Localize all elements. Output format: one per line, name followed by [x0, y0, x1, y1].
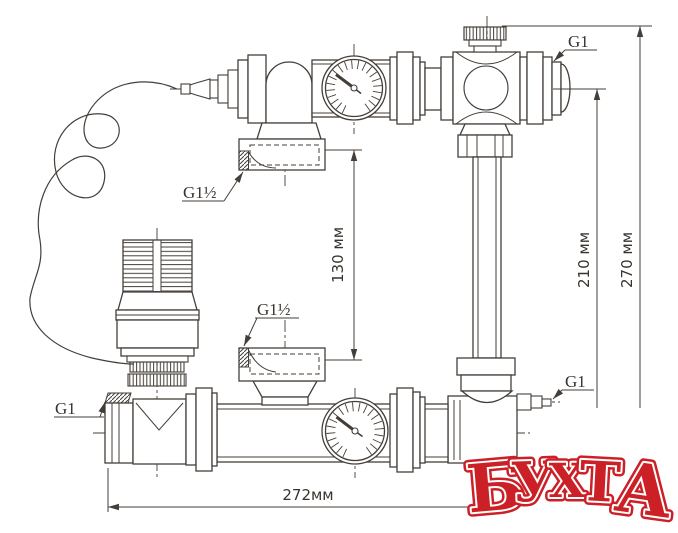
top-union-g1half	[239, 139, 325, 170]
dimension-130: 130 мм	[325, 150, 362, 360]
three-way-valve	[441, 27, 520, 124]
riser-flange	[460, 124, 510, 135]
dimension-210: 210 мм	[553, 89, 606, 408]
top-union-middle	[390, 52, 425, 124]
bottom-union-right-of-valve	[186, 388, 217, 471]
right-riser-pipe	[448, 157, 551, 463]
dimension-272: 272мм	[108, 468, 494, 512]
riser-bottom-nut	[457, 358, 515, 375]
logo-letter: А	[610, 445, 678, 533]
dim-overall-width: 272мм	[282, 486, 333, 504]
valve-handwheel[interactable]	[464, 27, 506, 40]
thread-hatch-top	[239, 151, 249, 170]
thread-hatch-bottom	[239, 348, 249, 367]
g1-bottom-right-text: G1	[565, 372, 586, 391]
label-g1-bottom-left: G1	[54, 399, 105, 418]
top-pipe-stub	[425, 68, 441, 110]
label-g1-top-right: G1	[554, 32, 597, 61]
pump-group-technical-drawing: 130 мм 210 мм 270 мм 272мм G1½ G1½ G1 G1…	[0, 0, 678, 533]
head-knurled-ring-1	[130, 362, 184, 372]
diagram-canvas: 130 мм 210 мм 270 мм 272мм G1½ G1½ G1 G1…	[0, 0, 678, 533]
label-g1half-bottom: G1½	[244, 300, 299, 346]
gauge-bottom-hub	[352, 428, 358, 434]
bottom-branch-g1half	[239, 348, 325, 405]
g1half-top-text: G1½	[183, 183, 217, 202]
gauge-top-hub	[351, 85, 357, 91]
thermostatic-valve-body	[133, 399, 186, 464]
label-g1-bottom-right: G1	[553, 372, 594, 399]
dim-center-height: 210 мм	[575, 232, 593, 288]
g1half-bottom-text: G1½	[257, 300, 291, 319]
label-g1half-top: G1½	[182, 172, 243, 202]
g1-bottom-left-text: G1	[55, 399, 76, 418]
bottom-union-right	[390, 388, 425, 472]
head-knurled-ring-2	[128, 374, 186, 386]
bottom-left-union	[105, 393, 133, 463]
capillary-connector	[176, 55, 266, 123]
brand-logo: Б Б У У Х Х Т Т А А	[464, 445, 678, 533]
elbow-nipple-g1	[517, 394, 531, 410]
dim-port-spacing: 130 мм	[329, 227, 347, 283]
top-union-right	[520, 52, 570, 124]
dim-overall-height: 270 мм	[618, 232, 636, 288]
g1-top-right-text: G1	[568, 32, 589, 51]
thread-hatch-left	[105, 393, 131, 403]
riser-top-union	[458, 135, 512, 157]
gauge-top-dial	[322, 56, 386, 120]
top-valve-assembly	[176, 27, 570, 170]
gauge-bottom-dial	[322, 398, 388, 464]
